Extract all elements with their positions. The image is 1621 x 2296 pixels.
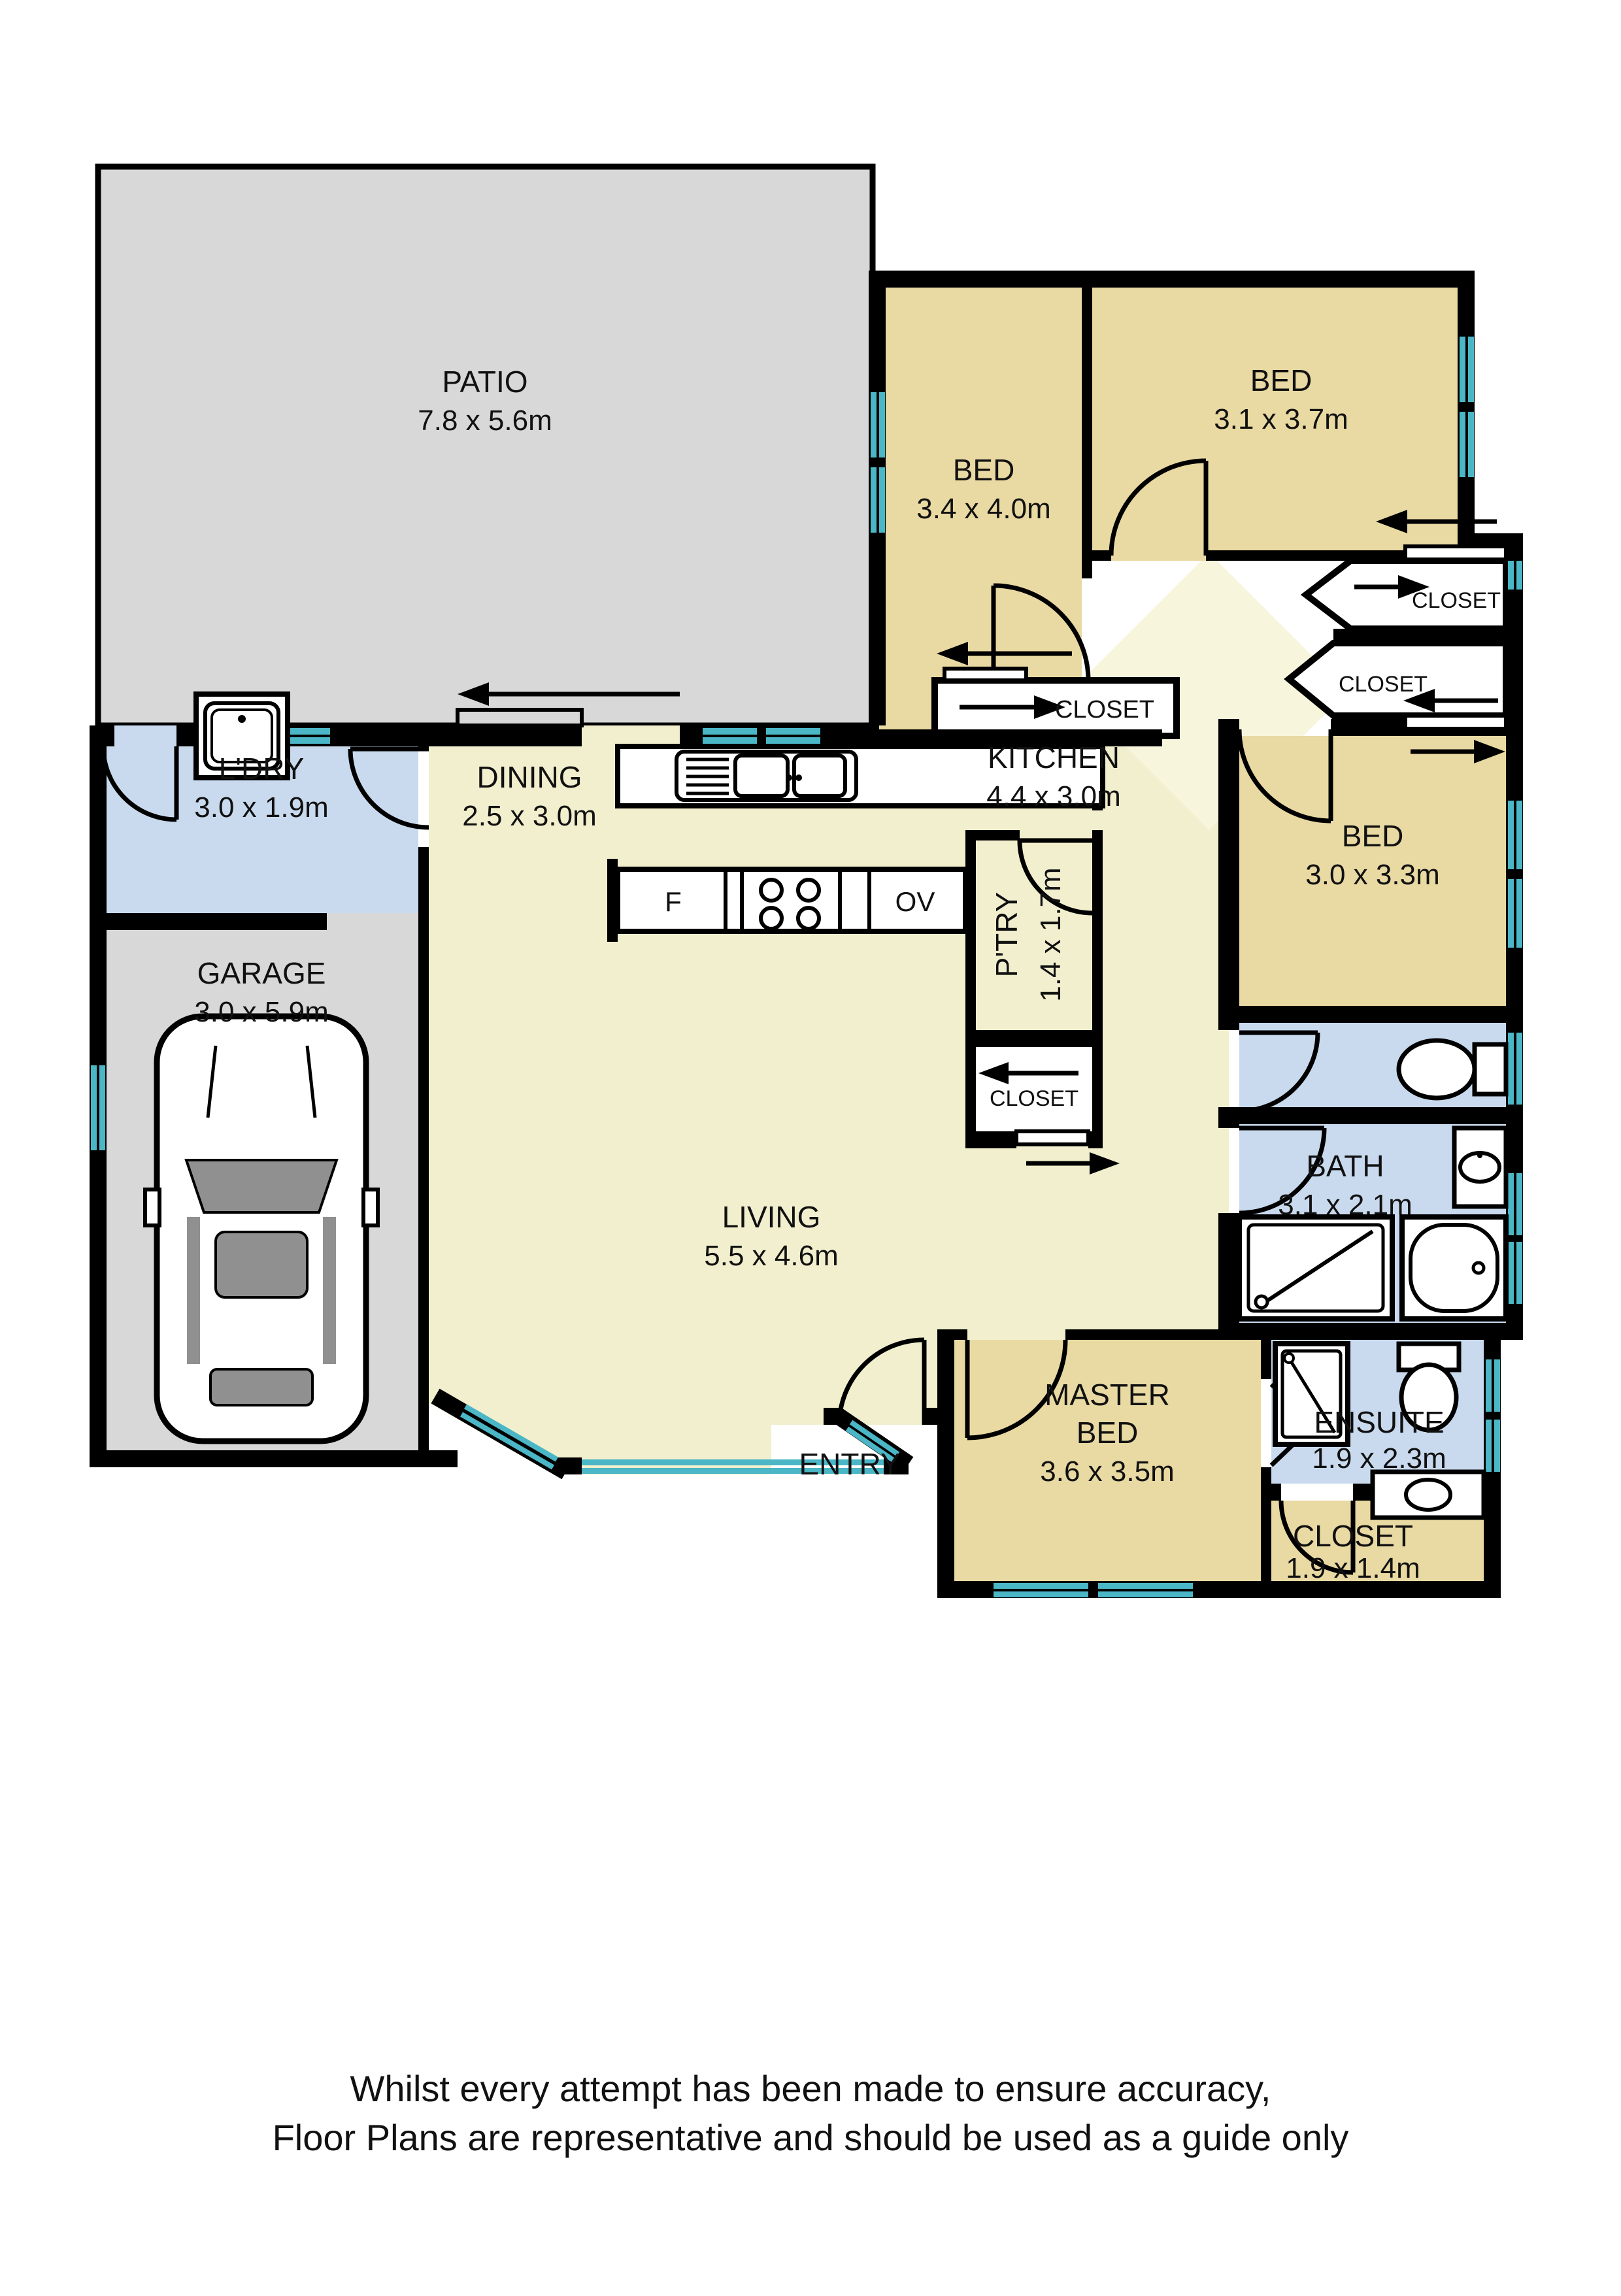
floorplan-page: F OV: [0, 0, 1621, 2293]
car-window-left: [187, 1217, 200, 1364]
laundry-label: L'DRY: [219, 752, 305, 786]
car-sunroof: [216, 1232, 307, 1297]
bed1-label: BED: [953, 453, 1015, 487]
living-dims: 5.5 x 4.6m: [704, 1240, 838, 1272]
disclaimer-block: Whilst every attempt has been made to en…: [273, 2068, 1349, 2158]
stove-burner: [798, 908, 819, 929]
fridge-label: F: [665, 886, 682, 917]
pantry-label: P'TRY: [990, 892, 1024, 978]
bath-dims: 3.1 x 2.1m: [1278, 1189, 1412, 1221]
car-mirror-right: [363, 1190, 378, 1225]
oven-label: OV: [895, 886, 935, 917]
bed1-closet-label: CLOSET: [1055, 696, 1154, 724]
dining-label: DINING: [477, 760, 582, 794]
garage-car: [145, 1016, 378, 1441]
bed1-dims: 3.4 x 4.0m: [916, 493, 1050, 525]
bed2-closet-label: CLOSET: [1412, 588, 1501, 613]
bed2-label: BED: [1250, 363, 1312, 397]
disclaimer-line1: Whilst every attempt has been made to en…: [350, 2068, 1271, 2109]
laundry-dims: 3.0 x 1.9m: [194, 791, 328, 824]
bed3-label: BED: [1342, 819, 1404, 853]
disclaimer-line2: Floor Plans are representative and shoul…: [273, 2117, 1349, 2158]
hall-closet-label: CLOSET: [990, 1086, 1078, 1111]
ensuite-basin: [1406, 1480, 1450, 1510]
master-closet-dims: 1.9 x 1.4m: [1286, 1552, 1420, 1584]
patio-floor: [98, 167, 873, 725]
patio-label: PATIO: [442, 365, 527, 399]
patio-dims: 7.8 x 5.6m: [418, 405, 552, 437]
master-closet-label: CLOSET: [1293, 1519, 1413, 1553]
laundry-door-opening: [114, 725, 176, 746]
dining-dims: 2.5 x 3.0m: [462, 800, 596, 832]
bed2-dims: 3.1 x 3.7m: [1214, 403, 1348, 435]
master-dims: 3.6 x 3.5m: [1040, 1456, 1174, 1488]
stove-burner: [761, 880, 782, 901]
floorplan-canvas: F OV: [0, 0, 1621, 2293]
living-label: LIVING: [722, 1200, 821, 1234]
pantry-dims: 1.4 x 1.7m: [1035, 867, 1067, 1001]
car-windshield: [186, 1160, 337, 1212]
kitchen-label: KITCHEN: [988, 740, 1120, 774]
master-label2: BED: [1077, 1416, 1139, 1450]
stove-burner: [798, 880, 819, 901]
bed3-dims: 3.0 x 3.3m: [1305, 859, 1439, 891]
ensuite-dims: 1.9 x 2.3m: [1312, 1442, 1446, 1474]
car-mirror-left: [145, 1190, 159, 1225]
car-window-right: [323, 1217, 336, 1364]
wc-toilet: [1399, 1040, 1475, 1098]
patio-slider-opening: [582, 725, 680, 746]
garage-label: GARAGE: [197, 956, 326, 990]
entry-label: ENTRY: [799, 1447, 900, 1481]
kitchen-dims: 4.4 x 3.0m: [986, 780, 1120, 812]
master-label1: MASTER: [1044, 1378, 1170, 1412]
stove-burner: [761, 908, 782, 929]
wc-toilet-tank: [1475, 1044, 1506, 1094]
garage-dims: 3.0 x 5.9m: [194, 996, 328, 1028]
bath-label: BATH: [1306, 1149, 1384, 1183]
bed3-closet-label: CLOSET: [1339, 672, 1428, 697]
ensuite-label: ENSUITE: [1314, 1405, 1444, 1439]
car-rear-window: [210, 1369, 312, 1405]
